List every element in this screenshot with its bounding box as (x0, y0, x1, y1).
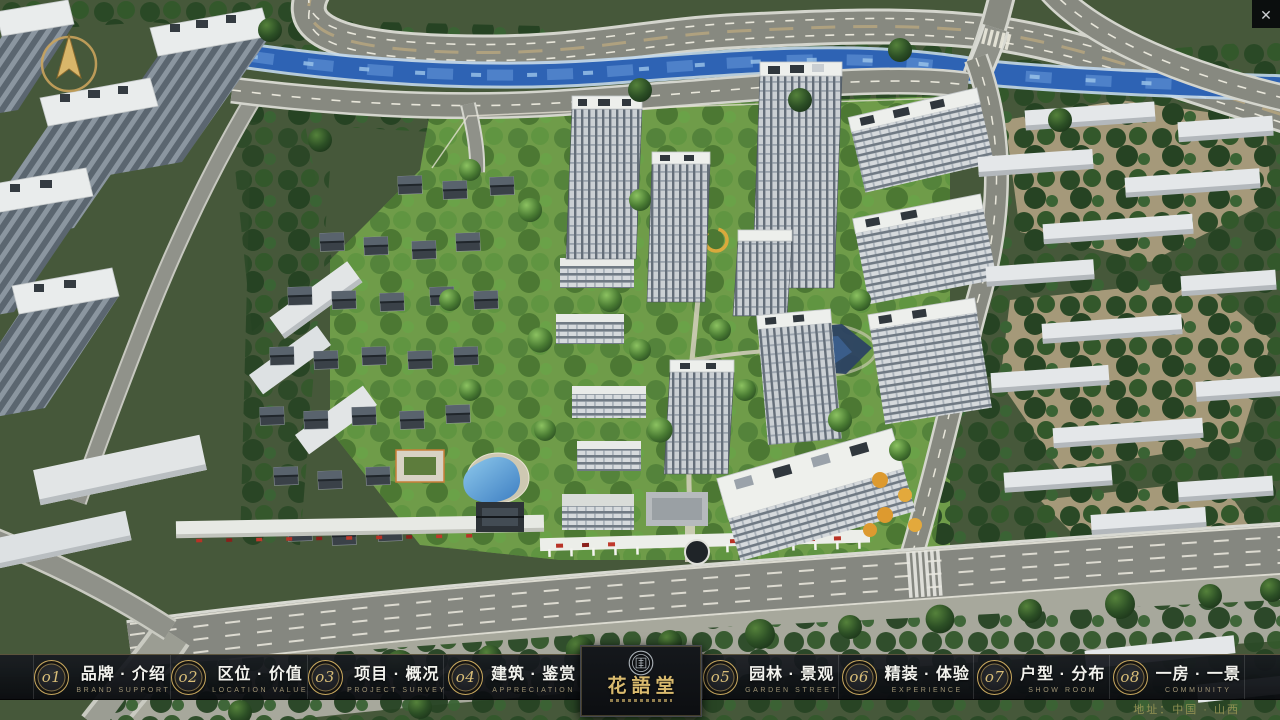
nav-label-en: COMMUNITY (1165, 687, 1232, 694)
nav-number: o6 (849, 668, 869, 686)
nav-label-en: SHOW ROOM (1028, 687, 1097, 694)
nav-label-cn: 一房 · 一景 (1156, 660, 1241, 684)
nav-badge-2-icon: o2 (171, 660, 206, 695)
logo-subtitle-line (610, 699, 672, 702)
nav-number: o4 (456, 668, 476, 686)
nav-badge-6-icon: o6 (842, 660, 877, 695)
close-button[interactable]: ✕ (1252, 0, 1280, 28)
nav-badge-1-icon: o1 (34, 660, 69, 695)
nav-number: o7 (985, 668, 1005, 686)
nav-number: o1 (42, 668, 62, 686)
nav-number: o3 (315, 668, 335, 686)
nav-badge-4-icon: o4 (448, 660, 483, 695)
compass-north-indicator (34, 28, 104, 98)
nav-right-group: o5 园林 · 景观 GARDEN STREET o6 精装 · 体验 EXPE… (702, 655, 1280, 699)
nav-left-group: o1 品牌 · 介绍 BRAND SUPPORT o2 区位 · 价值 LOCA… (0, 655, 580, 699)
logo-slot: 花語堂 (580, 655, 702, 699)
nav-number: o8 (1120, 668, 1140, 686)
bottom-nav-bar: o1 品牌 · 介绍 BRAND SUPPORT o2 区位 · 价值 LOCA… (0, 654, 1280, 700)
nav-label-cn: 项目 · 概况 (354, 660, 439, 684)
nav-label-en: GARDEN STREET (745, 687, 838, 694)
nav-item-room-view[interactable]: o8 一房 · 一景 COMMUNITY (1109, 655, 1246, 699)
nav-badge-5-icon: o5 (703, 660, 738, 695)
nav-label-cn: 精装 · 体验 (885, 660, 970, 684)
north-arrow-icon (57, 35, 81, 78)
nav-badge-7-icon: o7 (977, 660, 1012, 695)
entrance-gate (476, 502, 524, 532)
project-logo-panel[interactable]: 花語堂 (580, 645, 702, 717)
nav-label-cn: 区位 · 价值 (218, 660, 303, 684)
nav-label-cn: 园林 · 景观 (749, 660, 834, 684)
nav-badge-3-icon: o3 (308, 660, 343, 695)
orange-trim-building (396, 450, 444, 482)
nav-label-cn: 建筑 · 鉴赏 (491, 660, 576, 684)
nav-label-en: PROJECT SURVEY (347, 687, 447, 694)
nav-label-en: BRAND SUPPORT (76, 687, 170, 694)
project-logo-title: 花語堂 (602, 676, 679, 697)
nav-item-location-value[interactable]: o2 区位 · 价值 LOCATION VALUE (170, 655, 307, 699)
nav-item-architecture[interactable]: o4 建筑 · 鉴赏 APPRECIATION (443, 655, 580, 699)
nav-label-en: EXPERIENCE (892, 687, 963, 694)
project-address: 地址：中国 · 山西 (1133, 701, 1240, 717)
nav-item-brand-intro[interactable]: o1 品牌 · 介绍 BRAND SUPPORT (33, 655, 170, 699)
nav-label-cn: 户型 · 分布 (1020, 660, 1105, 684)
nav-label-en: LOCATION VALUE (212, 687, 308, 694)
nav-label-en: APPRECIATION (492, 687, 575, 694)
nav-item-project-overview[interactable]: o3 项目 · 概况 PROJECT SURVEY (307, 655, 444, 699)
nav-label-cn: 品牌 · 介绍 (81, 660, 166, 684)
nav-item-interior-experience[interactable]: o6 精装 · 体验 EXPERIENCE (838, 655, 974, 699)
presentation-window: ✕ o1 品牌 · 介绍 BRAND SUPPORT o2 区位 · 价值 LO… (0, 0, 1280, 720)
master-plan-render (0, 0, 1280, 720)
nav-badge-8-icon: o8 (1113, 660, 1148, 695)
nav-item-floorplan-distribution[interactable]: o7 户型 · 分布 SHOW ROOM (973, 655, 1109, 699)
nav-number: o2 (178, 668, 198, 686)
logo-seal-icon (628, 650, 654, 676)
nav-item-garden-landscape[interactable]: o5 园林 · 景观 GARDEN STREET (702, 655, 838, 699)
nav-number: o5 (711, 668, 731, 686)
